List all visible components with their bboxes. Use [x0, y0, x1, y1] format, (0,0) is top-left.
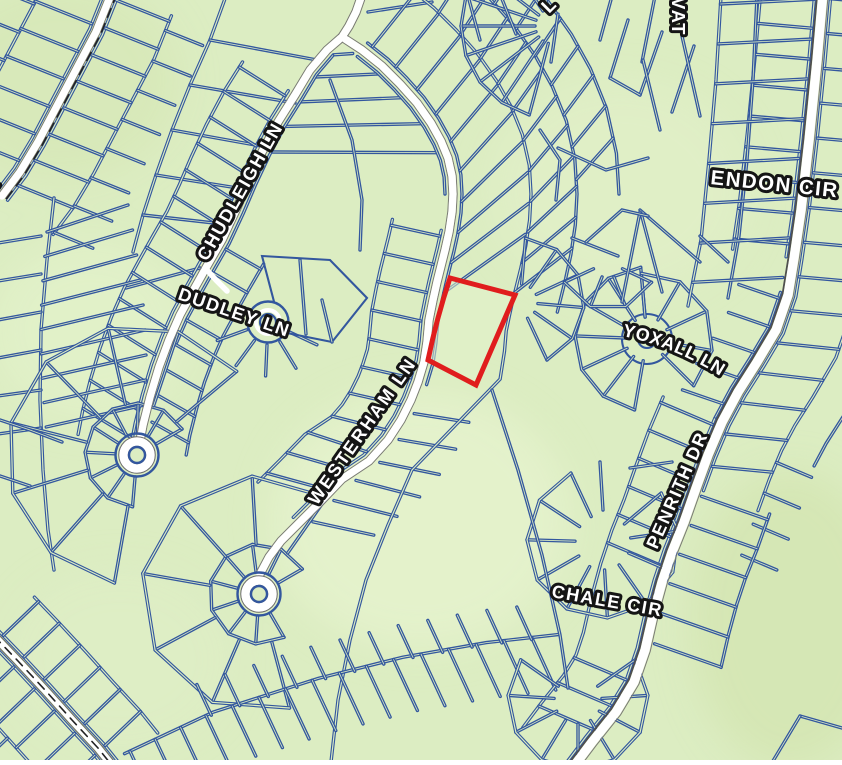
- svg-text:VAT: VAT: [668, 0, 689, 36]
